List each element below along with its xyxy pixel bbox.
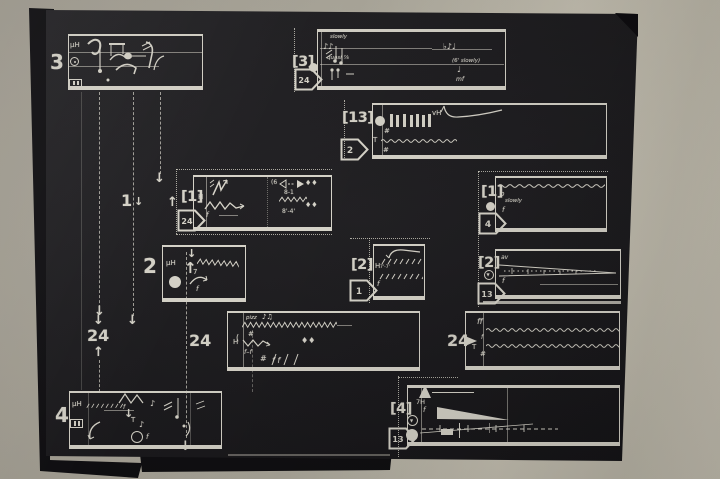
- dash-line: [432, 392, 474, 393]
- string-label: T: [472, 344, 476, 351]
- diamond-arrow-glyph: [279, 179, 305, 189]
- dynamic-text: f: [502, 207, 504, 214]
- up-arrow: ↑: [167, 196, 178, 209]
- dynamic-text: f: [423, 407, 425, 414]
- dynamic-text: f: [196, 286, 198, 293]
- up-triangle-glyph: [418, 385, 432, 399]
- mute-label: μH: [72, 401, 82, 408]
- svg-text:24: 24: [298, 76, 310, 85]
- note-glyph: ♪: [150, 400, 155, 408]
- voicing-label: H: [198, 194, 203, 201]
- down-arrow: ↓: [134, 196, 143, 207]
- inner-dotted-divider: [267, 177, 268, 229]
- diamond-pair: ♦♦: [305, 180, 318, 187]
- down-arrow: ↓: [187, 248, 196, 259]
- bolt-glyph: [209, 178, 233, 198]
- curve-arrow: [188, 272, 210, 287]
- filled-circle-icon: [169, 276, 181, 288]
- dynamic-text: f: [481, 335, 483, 341]
- stem-marks: [268, 352, 300, 367]
- filled-circle-icon: [486, 202, 495, 211]
- dip-curve: [440, 104, 506, 122]
- open-circle-icon: [131, 431, 143, 443]
- dash-line: [219, 215, 238, 216]
- system-13-label: [13]: [342, 111, 373, 126]
- hairpin-wedge: [498, 261, 619, 280]
- voicing-label: 7H: [416, 399, 425, 406]
- filled-circle-icon: [406, 429, 418, 441]
- dynamic-text: f: [146, 434, 148, 441]
- diamond-pair: ♦♦: [305, 202, 318, 209]
- sharp-sign: #: [260, 355, 267, 363]
- striped-box-icon: [69, 79, 82, 87]
- score-photo: 3 μH ↓ ↓ ↓ ↓ 1 ↓ ↓ 24 ↑ [3] 24: [0, 0, 720, 479]
- wavy-line: [486, 326, 619, 335]
- down-arrow: ↓: [154, 172, 165, 185]
- route-dashed-line: [160, 92, 161, 174]
- system-24m-number: 24: [189, 333, 211, 349]
- rhythm-tick: [396, 115, 399, 127]
- note-glyphs: ♪♫: [262, 314, 273, 321]
- note-glyph: ♪: [139, 421, 144, 429]
- paren-text: (6: [271, 180, 277, 186]
- dynamic-text: f–f: [244, 349, 252, 356]
- rhythm-tick: [403, 114, 406, 127]
- svg-text:4: 4: [485, 220, 491, 230]
- route-arrow-2: 2: [340, 138, 370, 161]
- up-arrow: ↑: [93, 346, 104, 359]
- dynamic-text: f: [206, 212, 208, 219]
- svg-text:1: 1: [356, 287, 362, 297]
- zigzag-arrow: [204, 199, 252, 213]
- rhythm-tick: [410, 115, 413, 127]
- route-dashed-line: [99, 92, 100, 313]
- section-dotted-edge: [478, 171, 608, 172]
- wavy-line: [486, 342, 619, 351]
- diamond-pair: ♦♦: [301, 337, 315, 345]
- mute-label: μH: [70, 42, 80, 49]
- sawtooth-line: [279, 196, 307, 204]
- system-2-number: 2: [143, 256, 157, 276]
- dash-line: [337, 325, 352, 326]
- dynamic-text: p: [500, 191, 504, 198]
- section-dotted-edge: [398, 377, 458, 378]
- curve-arrow: [85, 420, 105, 442]
- tempo-text: slowly: [505, 199, 522, 205]
- block-mark: [441, 429, 453, 435]
- sharp-sign: #: [384, 128, 390, 135]
- rhythm-tick: [428, 114, 431, 127]
- staff-line: [432, 49, 492, 50]
- system-24r-frame: [465, 311, 620, 370]
- sharp-sign: #: [383, 147, 389, 154]
- dynamic-text: mf: [456, 77, 464, 83]
- rhythm-tick: [416, 114, 419, 127]
- count-text: 7'-7': [380, 266, 390, 271]
- stem-mark: [489, 423, 490, 433]
- svg-text:13: 13: [392, 435, 403, 444]
- margin-line: [483, 313, 484, 366]
- section-dotted-edge: [350, 238, 430, 239]
- range-text: 8'-4': [282, 209, 295, 215]
- voicing-label: H: [233, 339, 238, 346]
- rhythm-tick: [422, 115, 425, 127]
- filled-circle-icon: [375, 116, 385, 126]
- down-arrow: ↓: [127, 314, 138, 327]
- system-3-number: 3: [50, 52, 64, 72]
- svg-text:2: 2: [347, 146, 353, 156]
- mute-label: μH: [166, 260, 176, 267]
- tick-row: [379, 273, 423, 280]
- notation-cluster: [160, 396, 215, 441]
- system-2m-label: [2]: [351, 258, 373, 273]
- tick-row: [381, 258, 423, 265]
- fold-line: [81, 92, 82, 390]
- notation-cluster: [82, 36, 202, 88]
- system-4-number: 4: [55, 405, 69, 425]
- stem-mark: [459, 423, 460, 438]
- extended-bottom-bar: [483, 301, 621, 304]
- rhythm-tick: [390, 114, 393, 127]
- route-dashed-line: [99, 360, 100, 392]
- cue-number-1: 1: [121, 193, 132, 209]
- string-label: T: [131, 417, 135, 424]
- section-dotted-edge: [176, 169, 332, 170]
- svg-text:13: 13: [481, 290, 492, 299]
- note-glyph: ♩: [457, 66, 461, 74]
- circle-dot-core: [74, 61, 76, 63]
- dynamic-text: ff: [477, 318, 483, 326]
- notation-cluster: [322, 40, 367, 82]
- tempo-text: (6' slowly): [452, 59, 480, 65]
- section-dotted-edge: [176, 234, 332, 235]
- svg-text:24: 24: [181, 217, 193, 226]
- sawtooth-line: [242, 321, 337, 330]
- dash-line: [540, 284, 618, 285]
- sheet-edge-highlight: [228, 454, 390, 456]
- triangle-down-glyph: ▼: [487, 273, 490, 277]
- cue-number-24: 24: [87, 328, 109, 344]
- sharp-sign: #: [480, 351, 486, 358]
- string-label: T: [373, 137, 377, 144]
- note-glyphs: ♭♪♩: [443, 43, 456, 51]
- dynamic-text: f: [502, 278, 504, 285]
- wavy-line: [498, 182, 605, 191]
- dynamic-text: f: [377, 281, 379, 288]
- wavy-line: [381, 137, 457, 146]
